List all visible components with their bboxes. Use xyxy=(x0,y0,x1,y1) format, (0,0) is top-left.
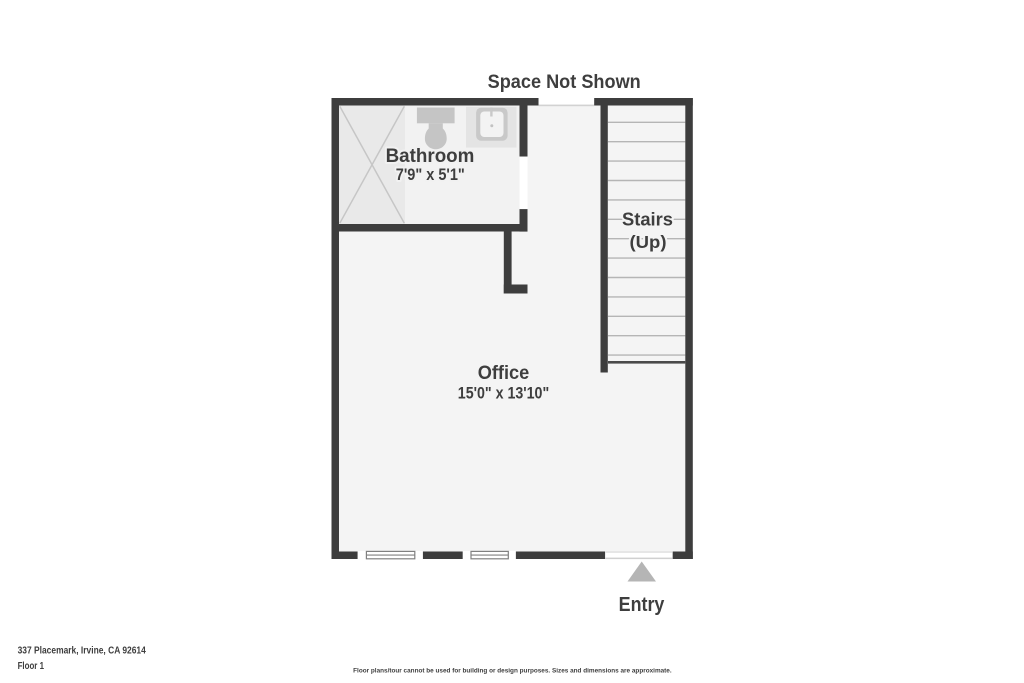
svg-text:Stairs: Stairs xyxy=(622,210,673,230)
svg-text:15'0" x 13'10": 15'0" x 13'10" xyxy=(458,384,549,402)
svg-text:(Up): (Up) xyxy=(630,232,667,252)
svg-text:Entry: Entry xyxy=(619,594,665,616)
svg-text:Bathroom: Bathroom xyxy=(386,145,475,167)
svg-text:Office: Office xyxy=(478,362,530,384)
svg-text:Floor 1: Floor 1 xyxy=(18,661,45,672)
svg-text:Floor plans/tour cannot be use: Floor plans/tour cannot be used for buil… xyxy=(353,667,672,674)
svg-text:7'9" x 5'1": 7'9" x 5'1" xyxy=(396,166,465,184)
svg-text:Space Not Shown: Space Not Shown xyxy=(488,71,641,93)
svg-text:337 Placemark, Irvine, CA 9261: 337 Placemark, Irvine, CA 92614 xyxy=(18,645,147,656)
